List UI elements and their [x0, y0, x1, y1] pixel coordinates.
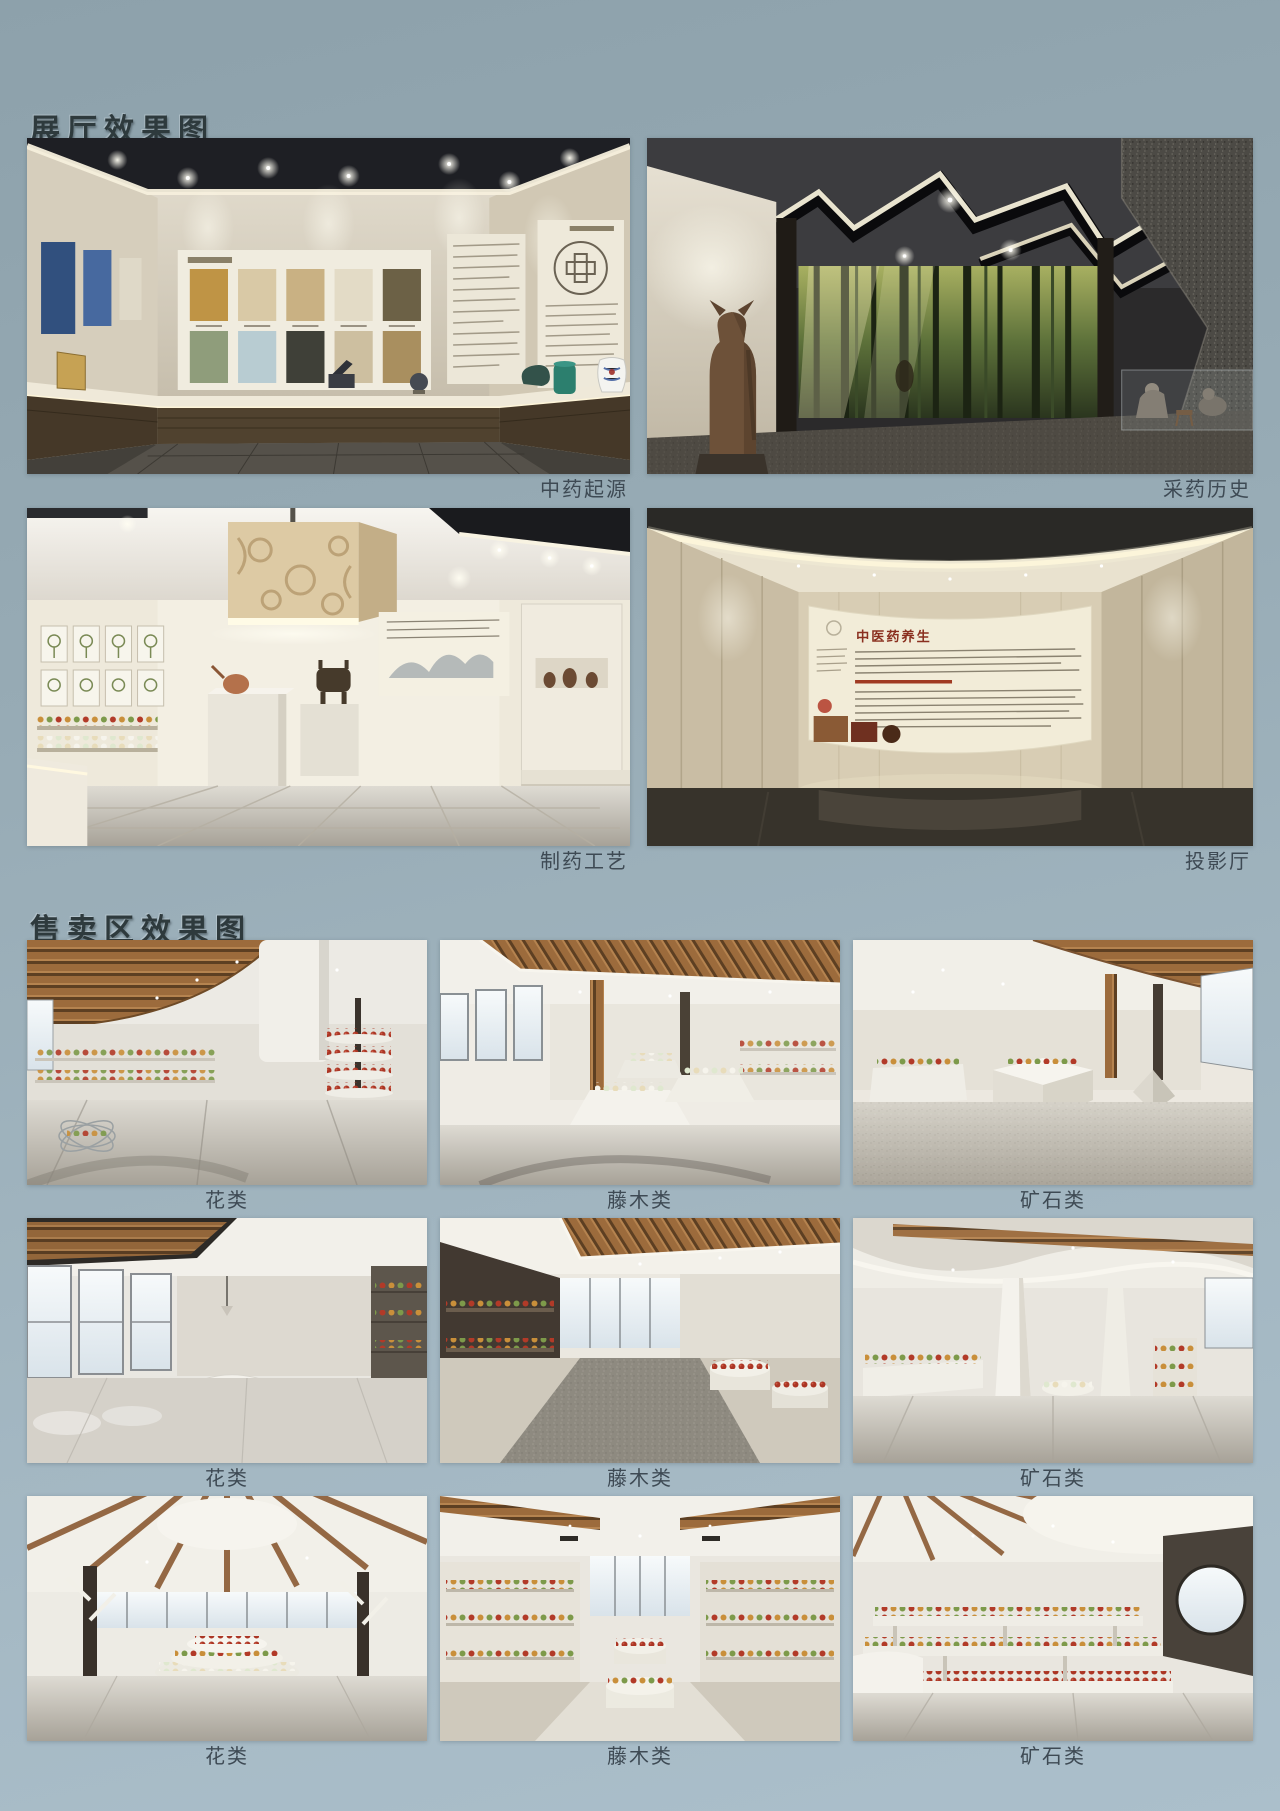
retail-render-image-minerals-2 — [853, 1218, 1253, 1463]
render-caption: 矿石类 — [853, 1185, 1253, 1215]
render-card-projection-hall: 中医药养生 投影厅 — [647, 508, 1253, 876]
render-image-herb-origin — [27, 138, 630, 474]
projection-screen-title: 中医药养生 — [856, 629, 932, 645]
retail-render-image-minerals-3 — [853, 1496, 1253, 1741]
render-caption: 藤木类 — [440, 1463, 840, 1493]
retail-render-card-vines-2: 藤木类 — [440, 1218, 840, 1493]
render-caption: 藤木类 — [440, 1741, 840, 1771]
render-image-projection-hall: 中医药养生 — [647, 508, 1253, 846]
retail-render-card-flowers-1: 花类 — [27, 940, 427, 1215]
retail-render-image-flowers-2 — [27, 1218, 427, 1463]
retail-render-card-minerals-1: 矿石类 — [853, 940, 1253, 1215]
retail-render-card-flowers-3: 花类 — [27, 1496, 427, 1771]
retail-render-card-minerals-3: 矿石类 — [853, 1496, 1253, 1771]
render-card-medicine-craft: 制药工艺 — [27, 508, 630, 876]
render-caption: 矿石类 — [853, 1463, 1253, 1493]
render-caption: 制药工艺 — [27, 846, 630, 876]
retail-render-card-minerals-2: 矿石类 — [853, 1218, 1253, 1493]
render-card-herb-origin: 中药起源 — [27, 138, 630, 504]
render-caption: 花类 — [27, 1463, 427, 1493]
render-card-herb-gathering-history: 采药历史 — [647, 138, 1253, 504]
retail-render-image-vines-2 — [440, 1218, 840, 1463]
render-caption: 花类 — [27, 1741, 427, 1771]
retail-render-image-vines-3 — [440, 1496, 840, 1741]
render-caption: 花类 — [27, 1185, 427, 1215]
render-caption: 投影厅 — [647, 846, 1253, 876]
retail-render-image-flowers-3 — [27, 1496, 427, 1741]
render-caption: 藤木类 — [440, 1185, 840, 1215]
retail-render-image-vines-1 — [440, 940, 840, 1185]
render-caption: 矿石类 — [853, 1741, 1253, 1771]
retail-render-card-flowers-2: 花类 — [27, 1218, 427, 1493]
retail-render-card-vines-3: 藤木类 — [440, 1496, 840, 1771]
render-caption: 中药起源 — [27, 474, 630, 504]
retail-render-image-minerals-1 — [853, 940, 1253, 1185]
render-caption: 采药历史 — [647, 474, 1253, 504]
render-image-herb-gathering-history — [647, 138, 1253, 474]
render-image-medicine-craft — [27, 508, 630, 846]
retail-render-image-flowers-1 — [27, 940, 427, 1185]
retail-render-card-vines-1: 藤木类 — [440, 940, 840, 1215]
